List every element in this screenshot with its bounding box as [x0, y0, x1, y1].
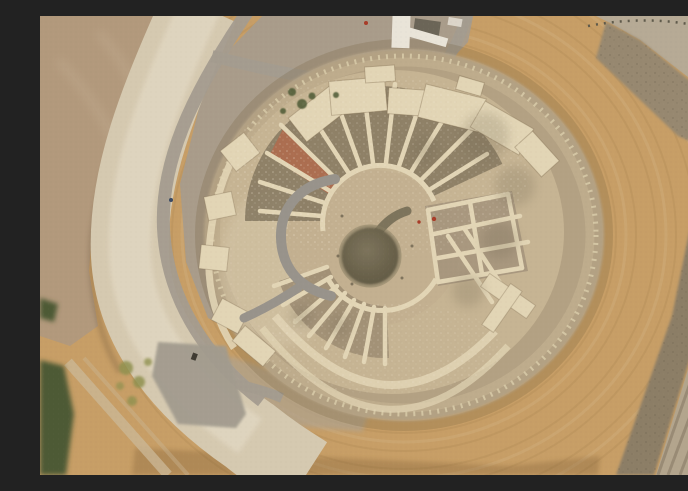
photo-grain: [40, 16, 688, 475]
aerial-photo: [40, 16, 688, 475]
